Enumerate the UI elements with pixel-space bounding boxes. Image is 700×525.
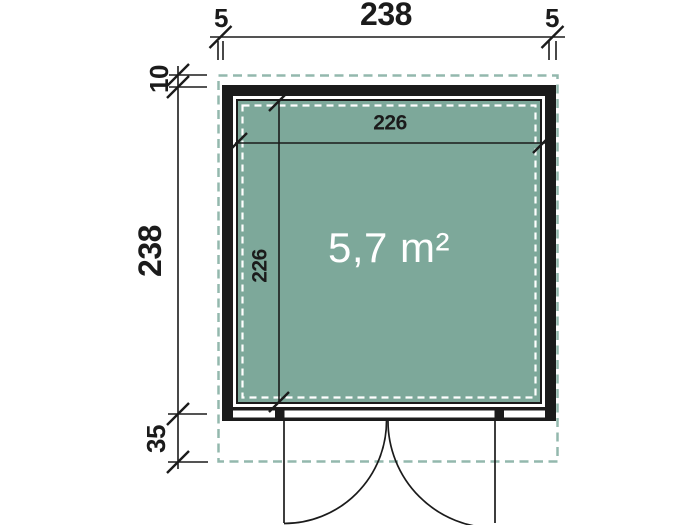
door-jamb-left <box>275 407 285 421</box>
floor-area-label: 5,7 m² <box>328 227 450 269</box>
dim-label-top-width: 238 <box>360 0 412 30</box>
dim-label-side-overhang-rear: 10 <box>146 65 172 93</box>
dim-label-side-overhang-front: 35 <box>143 425 169 453</box>
door-swing-arc-left <box>284 421 387 524</box>
dim-label-inner-depth: 226 <box>250 249 271 283</box>
dim-label-top-overhang-right: 5 <box>545 5 559 31</box>
wall-top <box>222 85 556 96</box>
dim-label-inner-width: 226 <box>373 113 407 134</box>
dim-ext-top <box>218 41 556 60</box>
dim-label-side-depth: 238 <box>134 225 166 277</box>
door-swing <box>284 421 495 525</box>
sill-bottom-line <box>222 418 556 422</box>
door-jamb-right <box>495 407 505 421</box>
floor-plan-canvas: 5 238 5 10 238 35 226 226 5,7 m² <box>0 0 700 525</box>
door-swing-arc-right <box>388 421 495 525</box>
dim-label-top-overhang-left: 5 <box>214 5 228 31</box>
wall-left <box>222 85 233 421</box>
